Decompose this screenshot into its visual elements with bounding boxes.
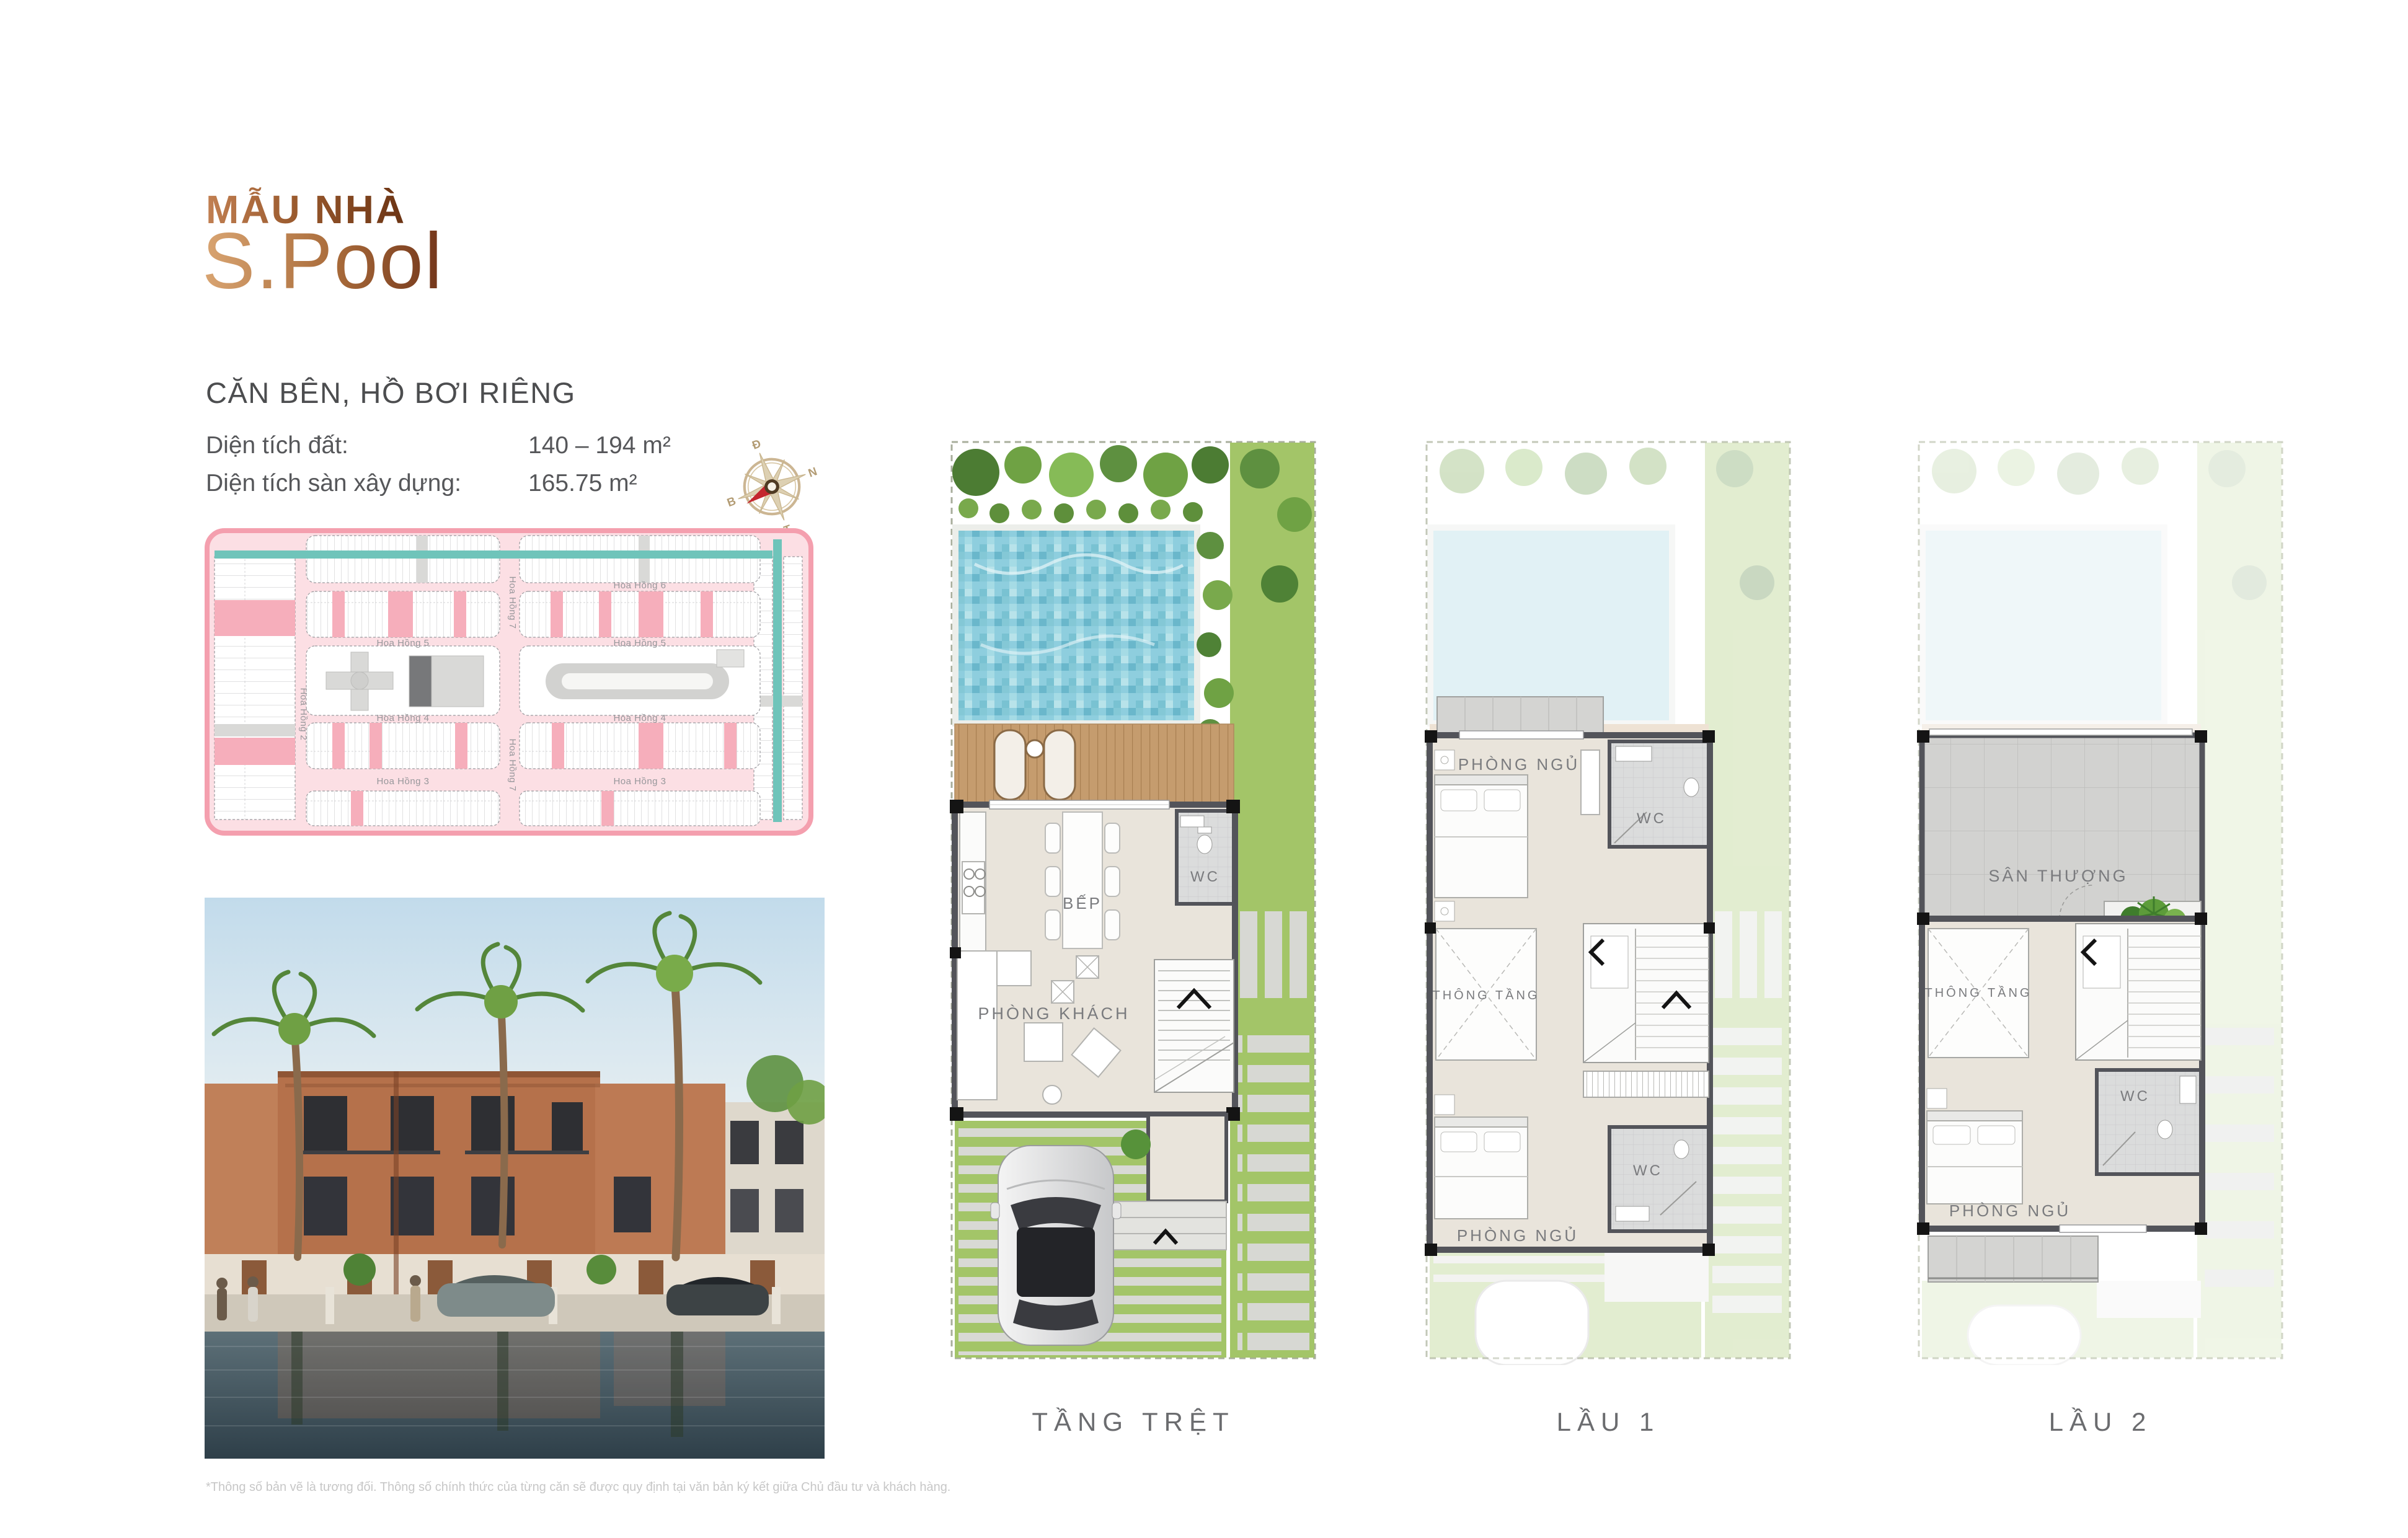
spec-value: 140 – 194 m² — [528, 426, 671, 464]
wardrobe — [1583, 1071, 1709, 1097]
wc: WC — [2097, 1070, 2201, 1174]
compass-rose-icon: Đ N T B — [719, 434, 825, 539]
street-label: Hoa Hồng 7 — [507, 738, 518, 791]
variant-title: CĂN BÊN, HỒ BƠI RIÊNG — [206, 376, 576, 410]
spec-label: Diện tích sàn xây dựng: — [206, 464, 528, 502]
wc-label: WC — [1633, 1162, 1663, 1179]
spec-row-land-area: Diện tích đất: 140 – 194 m² — [206, 426, 671, 464]
level1-plan: PHÒNG NGỦ WC THÔNG TẦNG — [1425, 697, 1715, 1256]
wc-top: WC — [1609, 741, 1709, 847]
street-label: Hoa Hồng 3 — [613, 776, 666, 787]
project-rendering-photo — [205, 898, 825, 1459]
street-label: Hoa Hồng 4 — [376, 713, 429, 723]
dining-table — [1045, 812, 1120, 948]
entry-steps — [1105, 1201, 1226, 1250]
roof-terrace: SÂN THƯỢNG — [1922, 729, 2202, 919]
model-name: S.Pool — [202, 216, 443, 307]
window-band — [1459, 731, 1583, 739]
bedroom-label: PHÒNG NGỦ — [1458, 754, 1580, 774]
street-label: Hoa Hồng 2 — [298, 687, 309, 740]
disclaimer-footnote: *Thông số bản vẽ là tương đối. Thông số … — [206, 1480, 950, 1495]
spec-label: Diện tích đất: — [206, 426, 528, 464]
waterfront-reflection — [205, 1332, 825, 1459]
bedroom-label: PHÒNG NGỦ — [1457, 1226, 1578, 1245]
void-double-height: THÔNG TẦNG — [1433, 929, 1540, 1060]
floor-plan-level1-drawing: PHÒNG NGỦ WC THÔNG TẦNG — [1425, 440, 1792, 1365]
wc-bottom: WC — [1609, 1127, 1709, 1231]
street-label: Hoa Hồng 4 — [613, 713, 666, 723]
street-label: Hoa Hồng 3 — [376, 776, 429, 787]
floor-plan-level2: SÂN THƯỢNG THÔNG TẦNG WC — [1917, 440, 2284, 1365]
street-label: Hoa Hồng 6 — [613, 580, 666, 591]
staircase — [1154, 960, 1234, 1092]
main-road-vertical — [773, 539, 782, 822]
shrub — [1121, 1129, 1151, 1159]
floor-plan-level2-drawing: SÂN THƯỢNG THÔNG TẦNG WC — [1917, 440, 2284, 1365]
poolside-bushes — [1197, 532, 1234, 744]
swimming-pool — [952, 524, 1200, 727]
master-site-plan-map: Hoa Hồng 6 Hoa Hồng 5 Hoa Hồng 5 Hoa Hồn… — [205, 528, 813, 836]
balcony — [1928, 1236, 2098, 1282]
driveway — [955, 1115, 1226, 1358]
stepping-stones — [1237, 911, 1309, 1353]
spec-value: 165.75 m² — [528, 464, 637, 502]
street-label: Hoa Hồng 7 — [507, 576, 518, 629]
staircase — [1583, 924, 1709, 1063]
terrace-label: SÂN THƯỢNG — [1988, 866, 2128, 885]
wc-label: WC — [1637, 810, 1667, 827]
street-label: Hoa Hồng 5 — [376, 638, 429, 648]
floor-plan-level1: PHÒNG NGỦ WC THÔNG TẦNG — [1425, 440, 1792, 1365]
entry-corridor — [1148, 1115, 1226, 1201]
pool-deck — [955, 724, 1234, 805]
car — [991, 1146, 1121, 1345]
floor-plan-caption: TẦNG TRỆT — [950, 1407, 1317, 1437]
staircase — [2076, 924, 2201, 1060]
wc-ground: WC — [1177, 811, 1234, 904]
level2-plan: SÂN THƯỢNG THÔNG TẦNG WC — [1917, 729, 2207, 1282]
street-label: Hoa Hồng 5 — [613, 638, 666, 648]
floor-plan-caption: LẦU 2 — [1917, 1407, 2284, 1437]
kitchen-label: BẾP — [1063, 894, 1102, 913]
living-room-label: PHÒNG KHÁCH — [978, 1004, 1130, 1023]
compass-east-label: Đ — [750, 436, 763, 451]
compass-north-label: B — [725, 494, 738, 509]
floor-plan-ground: BẾP WC PHÒNG KHÁCH — [950, 440, 1317, 1365]
window-band — [2060, 1225, 2146, 1232]
balcony — [1437, 697, 1603, 734]
amenity-blocks — [306, 646, 760, 715]
spec-row-floor-area: Diện tích sàn xây dựng: 165.75 m² — [206, 464, 671, 502]
void-label: THÔNG TẦNG — [1925, 986, 2032, 1000]
spec-table: Diện tích đất: 140 – 194 m² Diện tích sà… — [206, 426, 671, 502]
void-label: THÔNG TẦNG — [1433, 988, 1540, 1002]
wc-label: WC — [2120, 1088, 2150, 1105]
main-road-horizontal — [215, 550, 772, 559]
floor-plan-caption: LẦU 1 — [1425, 1407, 1792, 1437]
wc-label: WC — [1190, 868, 1220, 885]
floor-plan-ground-drawing: BẾP WC PHÒNG KHÁCH — [950, 440, 1317, 1365]
house-ground-floor: BẾP WC PHÒNG KHÁCH — [950, 800, 1240, 1121]
void-double-height: THÔNG TẦNG — [1925, 929, 2032, 1058]
compass-south-label: N — [807, 464, 819, 479]
bedroom-label: PHÒNG NGỦ — [1949, 1201, 2071, 1220]
